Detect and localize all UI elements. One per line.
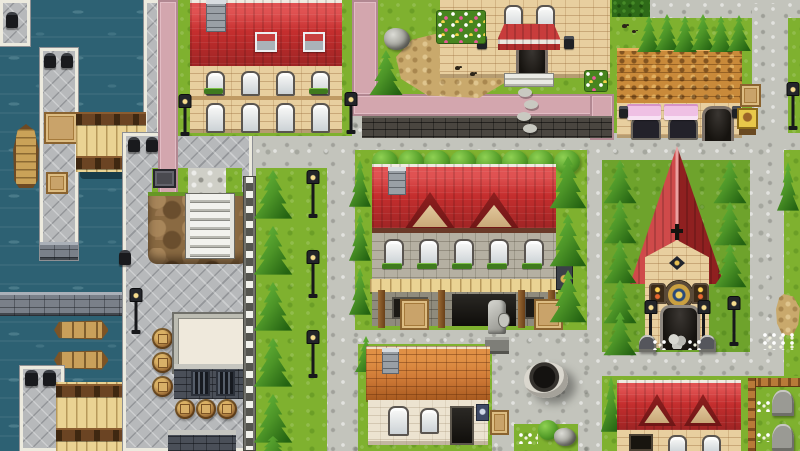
stepping-stone <box>524 100 538 109</box>
mooring-bollard <box>44 53 56 68</box>
dark-crate[interactable] <box>153 169 176 188</box>
barrel[interactable] <box>152 328 173 349</box>
bird <box>622 24 627 28</box>
street-lamp <box>305 250 321 298</box>
red-canopy <box>498 24 560 50</box>
white-flowers <box>652 339 666 350</box>
stepping-stone <box>523 124 537 133</box>
street-lamp <box>726 296 742 346</box>
barrel[interactable] <box>196 399 216 419</box>
plank-walkway[interactable] <box>243 176 256 451</box>
crate[interactable] <box>400 299 429 330</box>
wooden-fence <box>748 378 755 451</box>
street-lamp <box>178 94 192 136</box>
crate[interactable] <box>740 84 761 107</box>
gravestone[interactable] <box>699 335 716 352</box>
crate[interactable] <box>490 410 509 435</box>
roof-cross-ornament <box>671 224 683 240</box>
flower-box <box>382 263 402 269</box>
entrance-steps <box>505 74 553 86</box>
barrel[interactable] <box>217 399 237 419</box>
game-viewport[interactable] <box>0 0 800 451</box>
window <box>241 71 260 96</box>
street-lamp <box>786 82 800 130</box>
mooring-bollard <box>61 53 73 68</box>
chimney <box>382 348 399 374</box>
flower-box <box>522 263 542 269</box>
flower-box <box>487 263 507 269</box>
mooring-bollard <box>6 12 18 28</box>
white-flowers <box>518 432 538 444</box>
shop-window <box>631 117 661 140</box>
window <box>524 239 544 266</box>
porch-post <box>518 290 525 328</box>
bird <box>455 66 460 70</box>
dock-street-lamp <box>128 288 144 334</box>
window <box>206 103 225 133</box>
floor-divider <box>190 96 342 100</box>
bird <box>632 30 636 33</box>
bridge-rail <box>56 428 130 441</box>
white-flowers <box>756 400 772 412</box>
window <box>276 103 295 133</box>
window <box>388 406 409 436</box>
window <box>420 408 439 434</box>
stone-path <box>188 168 226 196</box>
stone-well[interactable] <box>524 362 568 398</box>
gravestone[interactable] <box>772 424 794 451</box>
hedge <box>612 0 652 17</box>
roof-skylight <box>303 32 325 52</box>
window <box>384 239 404 266</box>
pier-end-wall <box>40 242 78 260</box>
pink-path-horizontal <box>352 94 614 116</box>
pink-path-vertical <box>352 0 378 96</box>
bridge-rail <box>56 384 130 397</box>
porch-post <box>378 290 385 328</box>
barrel[interactable] <box>175 399 195 419</box>
flower-box <box>417 263 437 269</box>
window <box>276 71 295 96</box>
flower-box <box>452 263 472 269</box>
street-lamp <box>305 170 321 218</box>
mooring-bollard <box>43 370 56 386</box>
mooring-bollard <box>119 250 131 265</box>
shop-roof <box>617 48 742 103</box>
bakery-sign[interactable] <box>737 108 758 129</box>
window <box>668 435 687 451</box>
pink-awning <box>627 104 661 120</box>
cliff-stairs[interactable] <box>186 194 234 258</box>
chimney <box>388 167 406 195</box>
window <box>702 435 721 451</box>
shop-window <box>668 117 698 140</box>
flower-bed <box>436 10 486 44</box>
mooring-bollard <box>128 137 140 152</box>
warehouse-barred-window <box>216 370 235 396</box>
stepping-stone <box>517 112 531 121</box>
house-roof <box>617 380 741 430</box>
door-plaque[interactable] <box>476 404 489 421</box>
barrel[interactable] <box>152 376 173 397</box>
mooring-bollard <box>146 137 158 152</box>
cargo-crate[interactable] <box>46 172 68 194</box>
cottage-door[interactable] <box>450 406 474 445</box>
street-lamp <box>344 92 358 134</box>
wooden-fence <box>748 378 800 386</box>
window <box>311 103 330 133</box>
roof-skylight <box>255 32 277 52</box>
chimney <box>206 0 226 32</box>
lower-building-wall <box>168 430 236 451</box>
mooring-bollard <box>25 370 38 386</box>
stone-pile <box>668 334 687 349</box>
pink-awning <box>664 104 698 120</box>
dark-stone-wall <box>362 116 612 138</box>
window <box>489 239 509 266</box>
wall-lamp <box>564 36 574 49</box>
flower-box <box>309 88 328 94</box>
white-flowers <box>762 332 796 350</box>
seawall <box>0 292 122 316</box>
window <box>454 239 474 266</box>
rock <box>384 28 410 50</box>
street-lamp <box>305 330 321 378</box>
barrel[interactable] <box>152 352 173 373</box>
window <box>419 239 439 266</box>
stepping-stone <box>518 88 532 97</box>
house-door[interactable] <box>629 434 653 451</box>
bird <box>470 72 475 76</box>
flower-bed <box>584 70 608 92</box>
porch-post <box>438 290 445 328</box>
wall-lamp <box>619 106 628 118</box>
window <box>241 103 260 133</box>
warehouse-barred-window <box>191 370 210 396</box>
gravestone[interactable] <box>772 390 794 416</box>
statue-shield <box>498 313 510 328</box>
white-flowers <box>756 432 770 442</box>
flower-box <box>204 88 223 94</box>
white-flowers <box>687 339 701 350</box>
rock <box>554 428 576 446</box>
porch-beam <box>370 279 558 292</box>
cargo-crate[interactable] <box>44 112 78 144</box>
shop-door[interactable] <box>702 106 734 141</box>
bridge-rail <box>76 112 146 125</box>
pier-vertical <box>40 48 78 260</box>
